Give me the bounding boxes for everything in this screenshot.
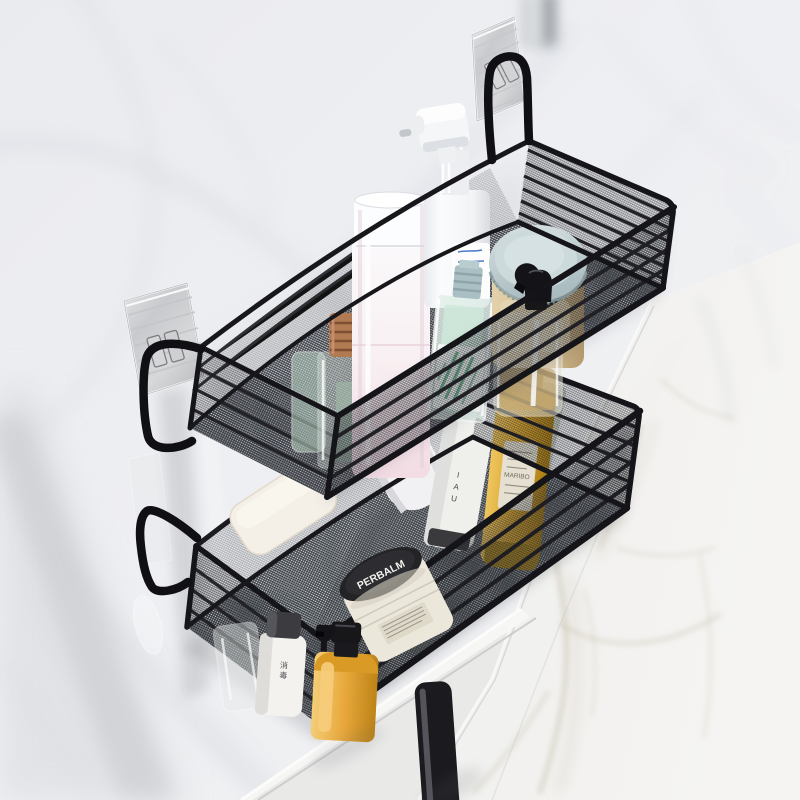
svg-text:毒: 毒 (279, 670, 288, 681)
svg-text:消: 消 (280, 660, 289, 671)
